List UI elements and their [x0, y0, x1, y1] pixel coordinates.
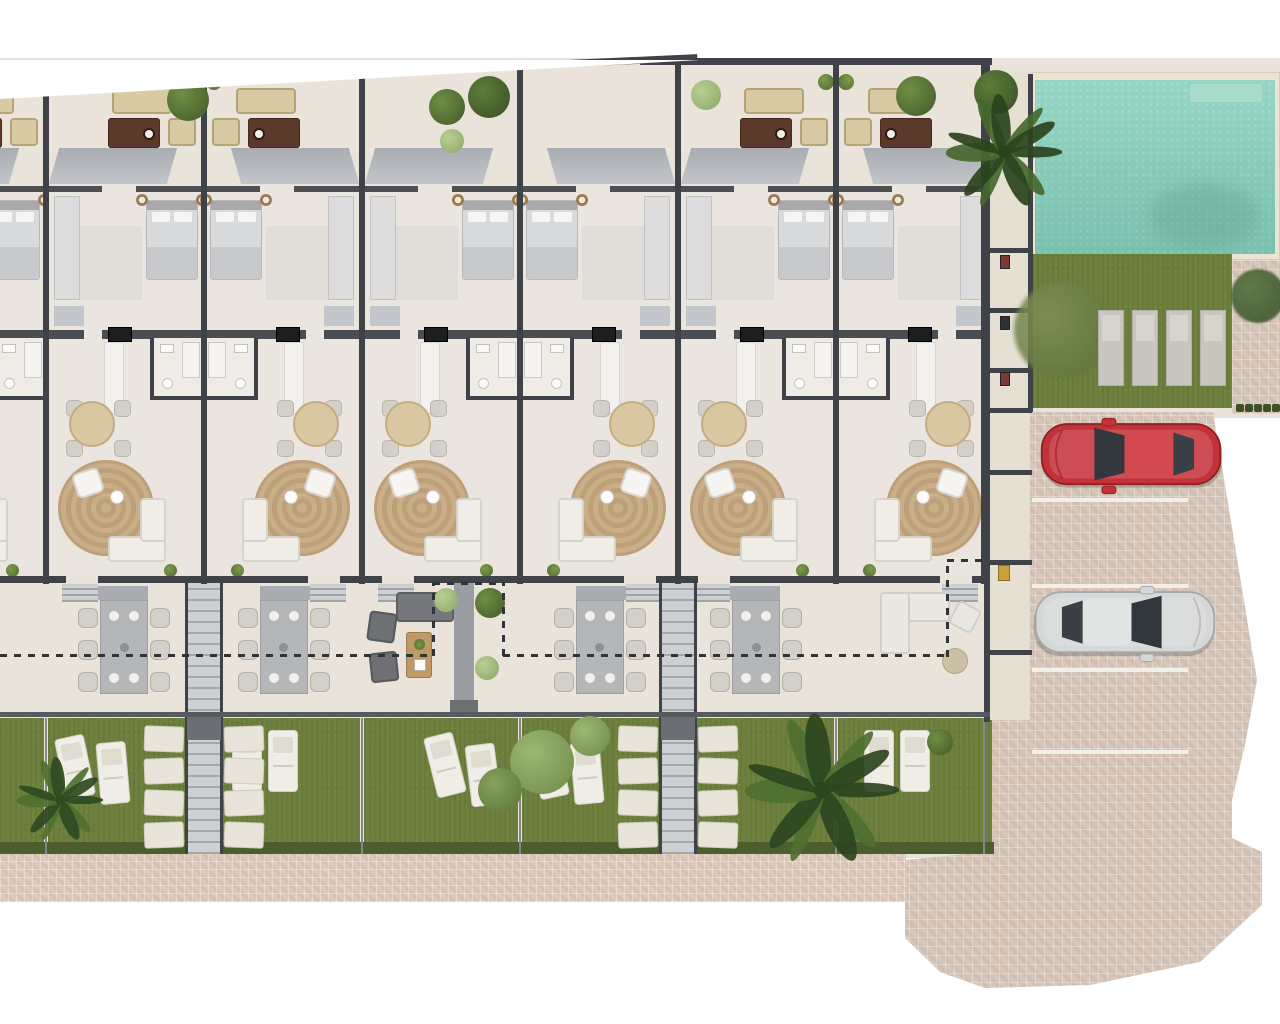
section-line-layer	[0, 0, 1280, 1024]
section-line	[502, 582, 505, 656]
section-line	[946, 559, 949, 657]
section-line	[0, 654, 433, 657]
floor-plan-canvas	[0, 0, 1280, 1024]
section-line	[433, 582, 505, 585]
section-line	[947, 559, 987, 562]
section-line	[432, 582, 435, 656]
section-line	[503, 654, 947, 657]
